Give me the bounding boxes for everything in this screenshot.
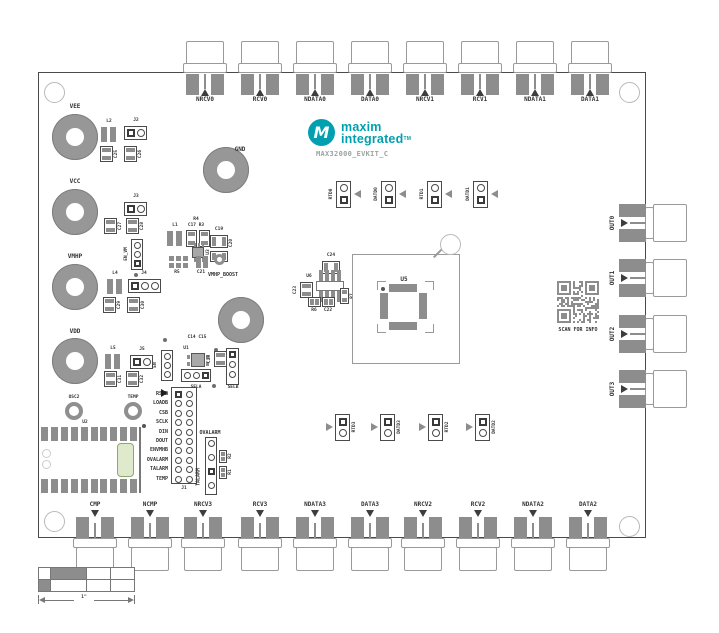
part-number-label: MAX32000_EVKIT_C <box>316 150 388 158</box>
j1-pin-label: TALARM <box>150 467 168 472</box>
inductor-pad <box>114 354 120 369</box>
qfn-corner-bracket <box>425 281 434 290</box>
signal-arrow-icon <box>91 510 99 517</box>
connector-label: NDATA3 <box>304 502 326 508</box>
dimension-arrow-icon <box>39 597 45 603</box>
terminal-label: VMHP <box>68 254 82 260</box>
resistor-label: R2 <box>229 453 234 458</box>
resistor <box>219 450 227 463</box>
capacitor-label: C23 <box>294 286 299 294</box>
j1-pin-label: CSB <box>159 411 168 416</box>
banana-jack <box>218 297 264 343</box>
capacitor <box>126 218 139 234</box>
header-pad <box>208 454 215 461</box>
signal-arrow-icon <box>311 89 319 96</box>
header-pad <box>164 362 171 369</box>
pin1-dot <box>142 424 146 428</box>
sma-connector-bottom-flange <box>348 538 392 548</box>
sma-connector-bottom-flange <box>181 538 225 548</box>
ic-pin <box>194 243 197 247</box>
ic-pin <box>319 270 323 281</box>
sma-ground-pad <box>241 517 254 538</box>
jumper-pad <box>339 418 347 426</box>
jumper-arrow-icon <box>419 423 426 431</box>
scale-segment <box>50 568 86 579</box>
sma-connector-top-flange <box>403 63 447 73</box>
connector-label: NCMP <box>143 502 157 508</box>
j1-pad <box>186 410 193 417</box>
dip-pad <box>120 479 127 493</box>
sma-ground-pad <box>514 517 527 538</box>
connector-label: NDATA1 <box>524 97 546 103</box>
mounting-hole <box>619 516 640 537</box>
jumper-pad <box>340 196 348 204</box>
j1-pad <box>186 457 193 464</box>
connector-label: NRCV3 <box>194 502 212 508</box>
capacitor-pad <box>203 256 208 268</box>
scale-segment <box>39 579 50 591</box>
sma-ground-pad <box>351 517 364 538</box>
dip-pad <box>61 479 68 493</box>
ic-outline <box>139 427 141 493</box>
ic-pin <box>337 270 341 281</box>
header-label: EN_VM <box>125 247 130 261</box>
terminal-label: VEE <box>70 104 81 110</box>
jumper-pad <box>137 205 145 213</box>
sma-ground-pad <box>484 517 497 538</box>
ic-label: U2 <box>82 421 87 426</box>
dip-pad <box>110 427 117 441</box>
sma-ground-pad <box>619 395 646 408</box>
jumper-label: RTD3 <box>353 422 358 433</box>
sma-center-pin <box>259 74 261 89</box>
header-pad <box>202 372 209 379</box>
capacitor-label: C27 <box>119 222 124 230</box>
jumper-pad <box>151 282 159 290</box>
connector-label: NDATA0 <box>304 97 326 103</box>
capacitor-label: C21 <box>197 271 205 276</box>
resistor-pad <box>169 256 174 261</box>
header-label: OVALARM <box>199 431 220 436</box>
maxim-logo-icon: M <box>308 119 335 146</box>
capacitor-label: C28 <box>141 222 146 230</box>
connector-label: DATA0 <box>361 97 379 103</box>
trademark-symbol: TM <box>403 136 411 142</box>
pin1-arrow-icon <box>161 389 168 397</box>
jumper-arrow-icon <box>466 423 473 431</box>
signal-arrow-icon <box>146 510 154 517</box>
qfn-pad <box>419 293 427 319</box>
capacitor-label: C13 <box>208 355 213 363</box>
header-label: EN <box>154 362 159 367</box>
signal-arrow-icon <box>586 89 594 96</box>
logo-letter: M <box>314 123 330 142</box>
dip-pad <box>71 427 78 441</box>
ic-label: U1 <box>183 347 188 352</box>
sma-connector-bottom <box>514 547 552 571</box>
sma-ground-pad <box>321 74 334 95</box>
signal-arrow-icon <box>201 89 209 96</box>
connector-label: RCV2 <box>471 502 485 508</box>
jumper-pad <box>141 282 149 290</box>
sma-ground-pad <box>156 517 169 538</box>
j1-pad <box>186 476 193 483</box>
resistor-pad <box>183 263 188 268</box>
sma-ground-pad <box>516 74 529 95</box>
header-pad <box>208 440 215 447</box>
connector-label: RCV0 <box>253 97 267 103</box>
mounting-hole <box>44 82 65 103</box>
sma-connector-top-flange <box>458 63 502 73</box>
jumper-pad <box>384 429 392 437</box>
signal-arrow-icon <box>419 510 427 517</box>
sma-ground-pad <box>296 517 309 538</box>
qfn-pad <box>389 322 417 330</box>
net-label: VMHP_BOOST <box>208 273 238 278</box>
ic-pin <box>198 243 201 247</box>
header-pad <box>134 242 141 249</box>
connector-label: DATA1 <box>581 97 599 103</box>
jumper-label: J2 <box>133 119 138 124</box>
terminal-label: VCC <box>70 179 81 185</box>
dip-pad <box>61 427 68 441</box>
sma-connector-bottom-flange <box>511 538 555 548</box>
mounting-hole <box>44 511 65 532</box>
sma-ground-pad <box>619 204 646 217</box>
j1-pad <box>186 429 193 436</box>
header-pad <box>229 351 236 358</box>
dut-socket-outline <box>352 254 460 364</box>
sma-ground-pad <box>539 517 552 538</box>
header-pad <box>208 468 215 475</box>
silkscreen-label: R4 <box>193 218 198 223</box>
sma-center-pin <box>94 523 96 538</box>
capacitor <box>124 146 137 162</box>
signal-arrow-icon <box>474 510 482 517</box>
jumper-pad <box>479 418 487 426</box>
connector-label: NDATA2 <box>522 502 544 508</box>
dip-pad <box>130 427 137 441</box>
sma-connector-bottom-flange <box>128 538 172 548</box>
sma-connector-right <box>653 204 687 242</box>
sma-center-pin <box>479 74 481 89</box>
sma-center-pin <box>149 523 151 538</box>
resistor <box>322 297 335 307</box>
testpoint-label: TEMP <box>128 396 139 401</box>
jumper-pad <box>127 129 135 137</box>
capacitor <box>127 297 140 313</box>
inductor-pad <box>167 231 173 246</box>
connector-label: DATA3 <box>361 502 379 508</box>
jumper-pad <box>340 184 348 192</box>
signal-arrow-icon <box>584 510 592 517</box>
capacitor-label: C14 C15 <box>188 336 207 341</box>
dimension-line <box>41 600 74 601</box>
jumper-pad <box>143 358 151 366</box>
inductor-label: L2 <box>106 120 111 125</box>
signal-arrow-icon <box>199 510 207 517</box>
capacitor <box>104 371 117 387</box>
pcb-layout-canvas: M maxim integratedTM MAX32000_EVKIT_C SC… <box>0 0 719 633</box>
brand-line-2: integratedTM <box>341 133 411 145</box>
dip-pad <box>71 479 78 493</box>
sma-connector-bottom-flange <box>73 538 117 548</box>
jumper-label: RTD1 <box>421 189 426 200</box>
resistor-label: C22 <box>324 309 332 314</box>
jumper-pad <box>432 418 440 426</box>
sma-connector-top-flange <box>348 63 392 73</box>
sma-connector-bottom <box>569 547 607 571</box>
qfn-pad <box>380 293 388 319</box>
sma-connector-bottom <box>184 547 222 571</box>
sma-center-pin <box>630 388 646 390</box>
capacitor-label: C25 <box>115 150 120 158</box>
ic-pin <box>187 355 190 359</box>
sma-ground-pad <box>596 74 609 95</box>
sma-center-pin <box>314 523 316 538</box>
header-pad <box>193 372 200 379</box>
j1-pad <box>175 429 182 436</box>
dip-pad <box>100 427 107 441</box>
ic-chip <box>191 353 205 367</box>
dip-pad <box>41 479 48 493</box>
sma-ground-pad <box>131 517 144 538</box>
ic-label: U5 <box>400 277 407 283</box>
header-pad <box>134 251 141 258</box>
via <box>42 449 51 458</box>
jumper-arrow-icon <box>491 190 498 198</box>
capacitor-pad <box>196 256 201 268</box>
jumper-label: RTD0 <box>330 189 335 200</box>
inductor-pad <box>110 127 116 142</box>
capacitor-label: C31 <box>119 375 124 383</box>
dip-pad <box>81 427 88 441</box>
sma-connector-right-flange <box>645 373 654 405</box>
j1-pad <box>175 391 182 398</box>
sma-connector-top <box>351 41 389 65</box>
banana-jack-gnd <box>203 147 249 193</box>
connector-label: OUT1 <box>610 271 616 285</box>
capacitor-label: C24 <box>327 254 335 259</box>
test-point <box>214 254 225 265</box>
maxim-logo-text: maxim integratedTM <box>341 121 411 145</box>
j1-pin-label: ENVMHB <box>150 448 168 453</box>
sma-ground-pad <box>209 517 222 538</box>
resistor-label: R6 <box>311 309 316 314</box>
qfn-corner-bracket <box>377 281 386 290</box>
qfn-corner-bracket <box>377 324 386 333</box>
sma-center-pin <box>424 74 426 89</box>
connector-label: OUT2 <box>610 327 616 341</box>
mounting-hole <box>619 82 640 103</box>
resistor <box>340 288 349 304</box>
sma-ground-pad <box>351 74 364 95</box>
jumper-pad <box>127 205 135 213</box>
ic-pin <box>187 362 190 366</box>
sma-ground-pad <box>619 315 646 328</box>
scale-divider <box>50 567 51 592</box>
header-label: J1 <box>181 487 186 492</box>
connector-label: OUT0 <box>610 216 616 230</box>
sma-center-pin <box>422 523 424 538</box>
banana-jack-vmhp <box>52 264 98 310</box>
sma-connector-bottom <box>459 547 497 571</box>
sma-connector-right <box>653 259 687 297</box>
signal-arrow-icon <box>311 510 319 517</box>
sma-connector-bottom <box>241 547 279 571</box>
capacitor-label: C19 <box>215 228 223 233</box>
banana-jack-vcc <box>52 189 98 235</box>
sma-connector-right-flange <box>645 318 654 350</box>
sma-ground-pad <box>594 517 607 538</box>
connector-label: DATA2 <box>579 502 597 508</box>
sma-connector-top <box>516 41 554 65</box>
sma-center-pin <box>589 74 591 89</box>
connector-label: CMP <box>90 502 101 508</box>
jumper-pad <box>339 429 347 437</box>
sma-connector-bottom-flange <box>566 538 610 548</box>
sma-ground-pad <box>431 74 444 95</box>
test-via <box>212 384 216 388</box>
sma-connector-bottom <box>131 547 169 571</box>
jumper-label: J5 <box>139 348 144 353</box>
terminal-label: GND <box>235 147 246 153</box>
inductor-label: L1 <box>172 224 177 229</box>
sma-connector-bottom-flange <box>401 538 445 548</box>
sma-center-pin <box>630 222 646 224</box>
terminal-label: VDD <box>70 329 81 335</box>
jumper-pad <box>385 184 393 192</box>
dip-pad <box>130 479 137 493</box>
dimension-tick <box>134 595 135 604</box>
sma-ground-pad <box>186 74 199 95</box>
jumper-pad <box>384 418 392 426</box>
sma-ground-pad <box>619 259 646 272</box>
sma-connector-top-flange <box>568 63 612 73</box>
capacitor-label: C29 <box>118 301 123 309</box>
dip-pad <box>120 427 127 441</box>
sma-ground-pad <box>571 74 584 95</box>
connector-label: NRCV2 <box>414 502 432 508</box>
dip-pad <box>51 479 58 493</box>
signal-arrow-icon <box>621 330 628 338</box>
connector-label: RCV1 <box>473 97 487 103</box>
resistor-pad <box>169 263 174 268</box>
j1-pad <box>175 476 182 483</box>
sma-connector-right <box>653 315 687 353</box>
inductor-pad <box>101 127 107 142</box>
signal-arrow-icon <box>621 219 628 227</box>
sma-ground-pad <box>266 517 279 538</box>
jumper-label: DATD2 <box>493 420 498 434</box>
jumper-arrow-icon <box>399 190 406 198</box>
sma-connector-top <box>571 41 609 65</box>
signal-arrow-icon <box>421 89 429 96</box>
inductor-pad <box>107 279 113 294</box>
sma-ground-pad <box>211 74 224 95</box>
test-point-osc2 <box>65 402 83 420</box>
ic-label: U3 <box>207 249 212 254</box>
capacitor <box>126 371 139 387</box>
sma-connector-top-flange <box>513 63 557 73</box>
sma-ground-pad <box>406 74 419 95</box>
sma-center-pin <box>630 277 646 279</box>
sma-ground-pad <box>619 340 646 353</box>
via <box>42 460 51 469</box>
qr-code <box>557 281 599 323</box>
scale-divider <box>86 567 87 592</box>
resistor-pad <box>176 263 181 268</box>
connector-label: OUT3 <box>610 382 616 396</box>
j1-pad <box>186 438 193 445</box>
sma-connector-bottom-flange <box>238 538 282 548</box>
capacitor <box>300 282 313 298</box>
crystal-component <box>117 443 134 477</box>
jumper-arrow-icon <box>445 190 452 198</box>
sma-ground-pad <box>619 229 646 242</box>
inductor-pad <box>176 231 182 246</box>
dip-pad <box>41 427 48 441</box>
sma-connector-bottom <box>351 547 389 571</box>
scale-dimension-label: 1" <box>81 596 86 601</box>
jumper-pad <box>131 282 139 290</box>
test-point-temp <box>124 402 142 420</box>
test-via <box>163 338 167 342</box>
banana-jack-vee <box>52 114 98 160</box>
header-pad <box>208 482 215 489</box>
j1-pad <box>175 457 182 464</box>
sma-connector-top <box>296 41 334 65</box>
ic-pin <box>331 270 335 281</box>
sma-ground-pad <box>404 517 417 538</box>
sma-center-pin <box>369 74 371 89</box>
sma-ground-pad <box>241 74 254 95</box>
sma-connector-top-flange <box>238 63 282 73</box>
silkscreen-label: C17 R3 <box>188 224 204 229</box>
signal-arrow-icon <box>366 510 374 517</box>
jumper-arrow-icon <box>354 190 361 198</box>
sma-ground-pad <box>76 517 89 538</box>
ic-label: U6 <box>306 275 311 280</box>
dip-pad <box>51 427 58 441</box>
sma-connector-top-flange <box>183 63 227 73</box>
dimension-line <box>94 600 128 601</box>
signal-arrow-icon <box>256 510 264 517</box>
jumper-label: DATD0 <box>375 187 380 201</box>
sma-ground-pad <box>461 74 474 95</box>
signal-arrow-icon <box>621 274 628 282</box>
resistor <box>308 297 321 307</box>
scale-divider <box>110 567 111 592</box>
sma-center-pin <box>204 74 206 89</box>
signal-arrow-icon <box>256 89 264 96</box>
sma-connector-bottom <box>296 547 334 571</box>
resistor-label: R5 <box>174 271 179 276</box>
sma-connector-bottom-flange <box>293 538 337 548</box>
socket-alignment-hole <box>440 234 461 255</box>
header-pad <box>134 260 141 267</box>
capacitor-label: C32 <box>141 375 146 383</box>
capacitor-label: C26 <box>139 150 144 158</box>
sma-connector-top <box>241 41 279 65</box>
dip-pad <box>91 479 98 493</box>
testpoint-label: OSC2 <box>69 396 80 401</box>
capacitor <box>210 235 228 248</box>
sma-ground-pad <box>184 517 197 538</box>
jumper-pad <box>477 184 485 192</box>
jumper-label: J3 <box>133 195 138 200</box>
test-via <box>134 273 138 277</box>
